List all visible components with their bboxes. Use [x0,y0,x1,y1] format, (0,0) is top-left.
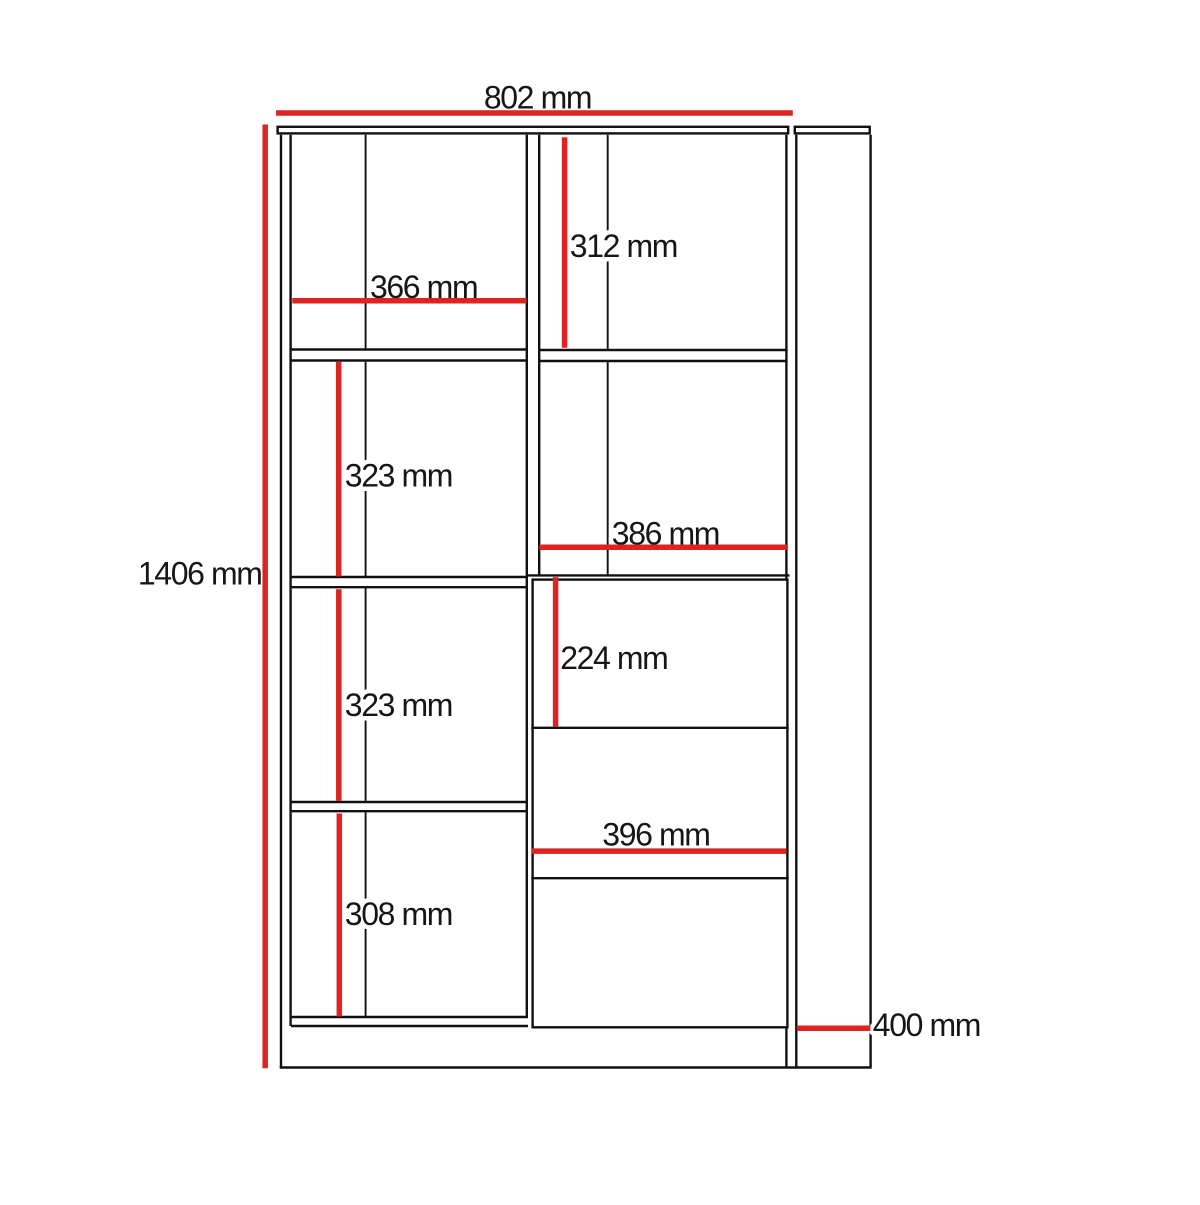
svg-text:400 mm: 400 mm [873,1007,980,1043]
svg-text:396 mm: 396 mm [602,816,709,852]
svg-text:308 mm: 308 mm [345,896,452,932]
svg-text:323 mm: 323 mm [345,458,452,494]
svg-text:224 mm: 224 mm [560,640,667,676]
svg-text:802 mm: 802 mm [484,79,591,115]
svg-text:323 mm: 323 mm [345,687,452,723]
svg-text:1406 mm: 1406 mm [138,556,262,592]
svg-text:312 mm: 312 mm [570,228,677,264]
